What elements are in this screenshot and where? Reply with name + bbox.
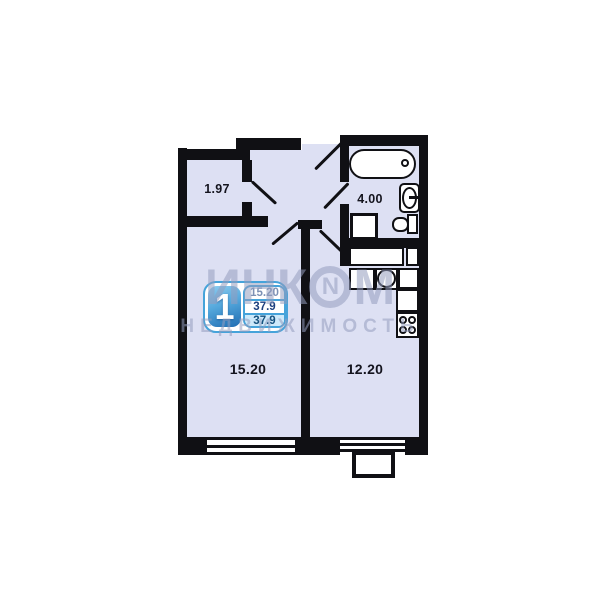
- wall: [301, 229, 310, 447]
- washing-machine: [350, 213, 378, 240]
- floor-plan: 1.97 4.00 15.20 12.20 1 15.20 37.9 37.9 …: [0, 0, 600, 600]
- legend-badge: 1 15.20 37.9 37.9: [203, 281, 288, 333]
- toilet-bowl: [392, 217, 409, 232]
- area-row: 37.9: [245, 313, 284, 327]
- stove-burner: [399, 326, 407, 334]
- bathroom-sink-tap: [409, 196, 418, 199]
- wall: [242, 160, 252, 182]
- wall: [419, 135, 428, 455]
- wall: [295, 437, 340, 455]
- room-count-tile: 1: [208, 286, 241, 327]
- wall: [236, 138, 301, 150]
- room-count: 1: [214, 289, 234, 325]
- balcony: [352, 451, 395, 478]
- wall: [340, 204, 349, 266]
- kitchen-cabinet: [349, 268, 375, 290]
- room-fill-hall-top: [250, 150, 302, 162]
- area-row: 37.9: [245, 299, 284, 313]
- stove-burner: [408, 316, 416, 324]
- wall: [178, 437, 207, 455]
- kitchen-cabinet: [396, 289, 419, 312]
- wall: [298, 220, 322, 229]
- wall: [405, 437, 428, 455]
- kitchen-sink: [377, 269, 396, 288]
- bathtub-drain: [401, 159, 409, 167]
- stove: [396, 312, 419, 338]
- room-label-kitchen: 12.20: [327, 361, 403, 377]
- kitchen-counter: [349, 247, 404, 266]
- wall: [340, 135, 428, 146]
- stove-burner: [408, 326, 416, 334]
- window-living: [207, 437, 295, 455]
- wall: [340, 146, 349, 182]
- kitchen-cabinet: [398, 268, 419, 289]
- wall: [178, 149, 242, 160]
- room-label-living: 15.20: [210, 361, 286, 377]
- area-row: 15.20: [245, 287, 284, 299]
- kitchen-cabinet: [406, 247, 419, 266]
- area-table: 15.20 37.9 37.9: [243, 285, 286, 328]
- wall: [178, 148, 187, 455]
- wall: [178, 216, 268, 227]
- room-label-hallway: 1.97: [189, 182, 245, 196]
- room-label-bathroom: 4.00: [348, 192, 392, 206]
- stove-burner: [399, 316, 407, 324]
